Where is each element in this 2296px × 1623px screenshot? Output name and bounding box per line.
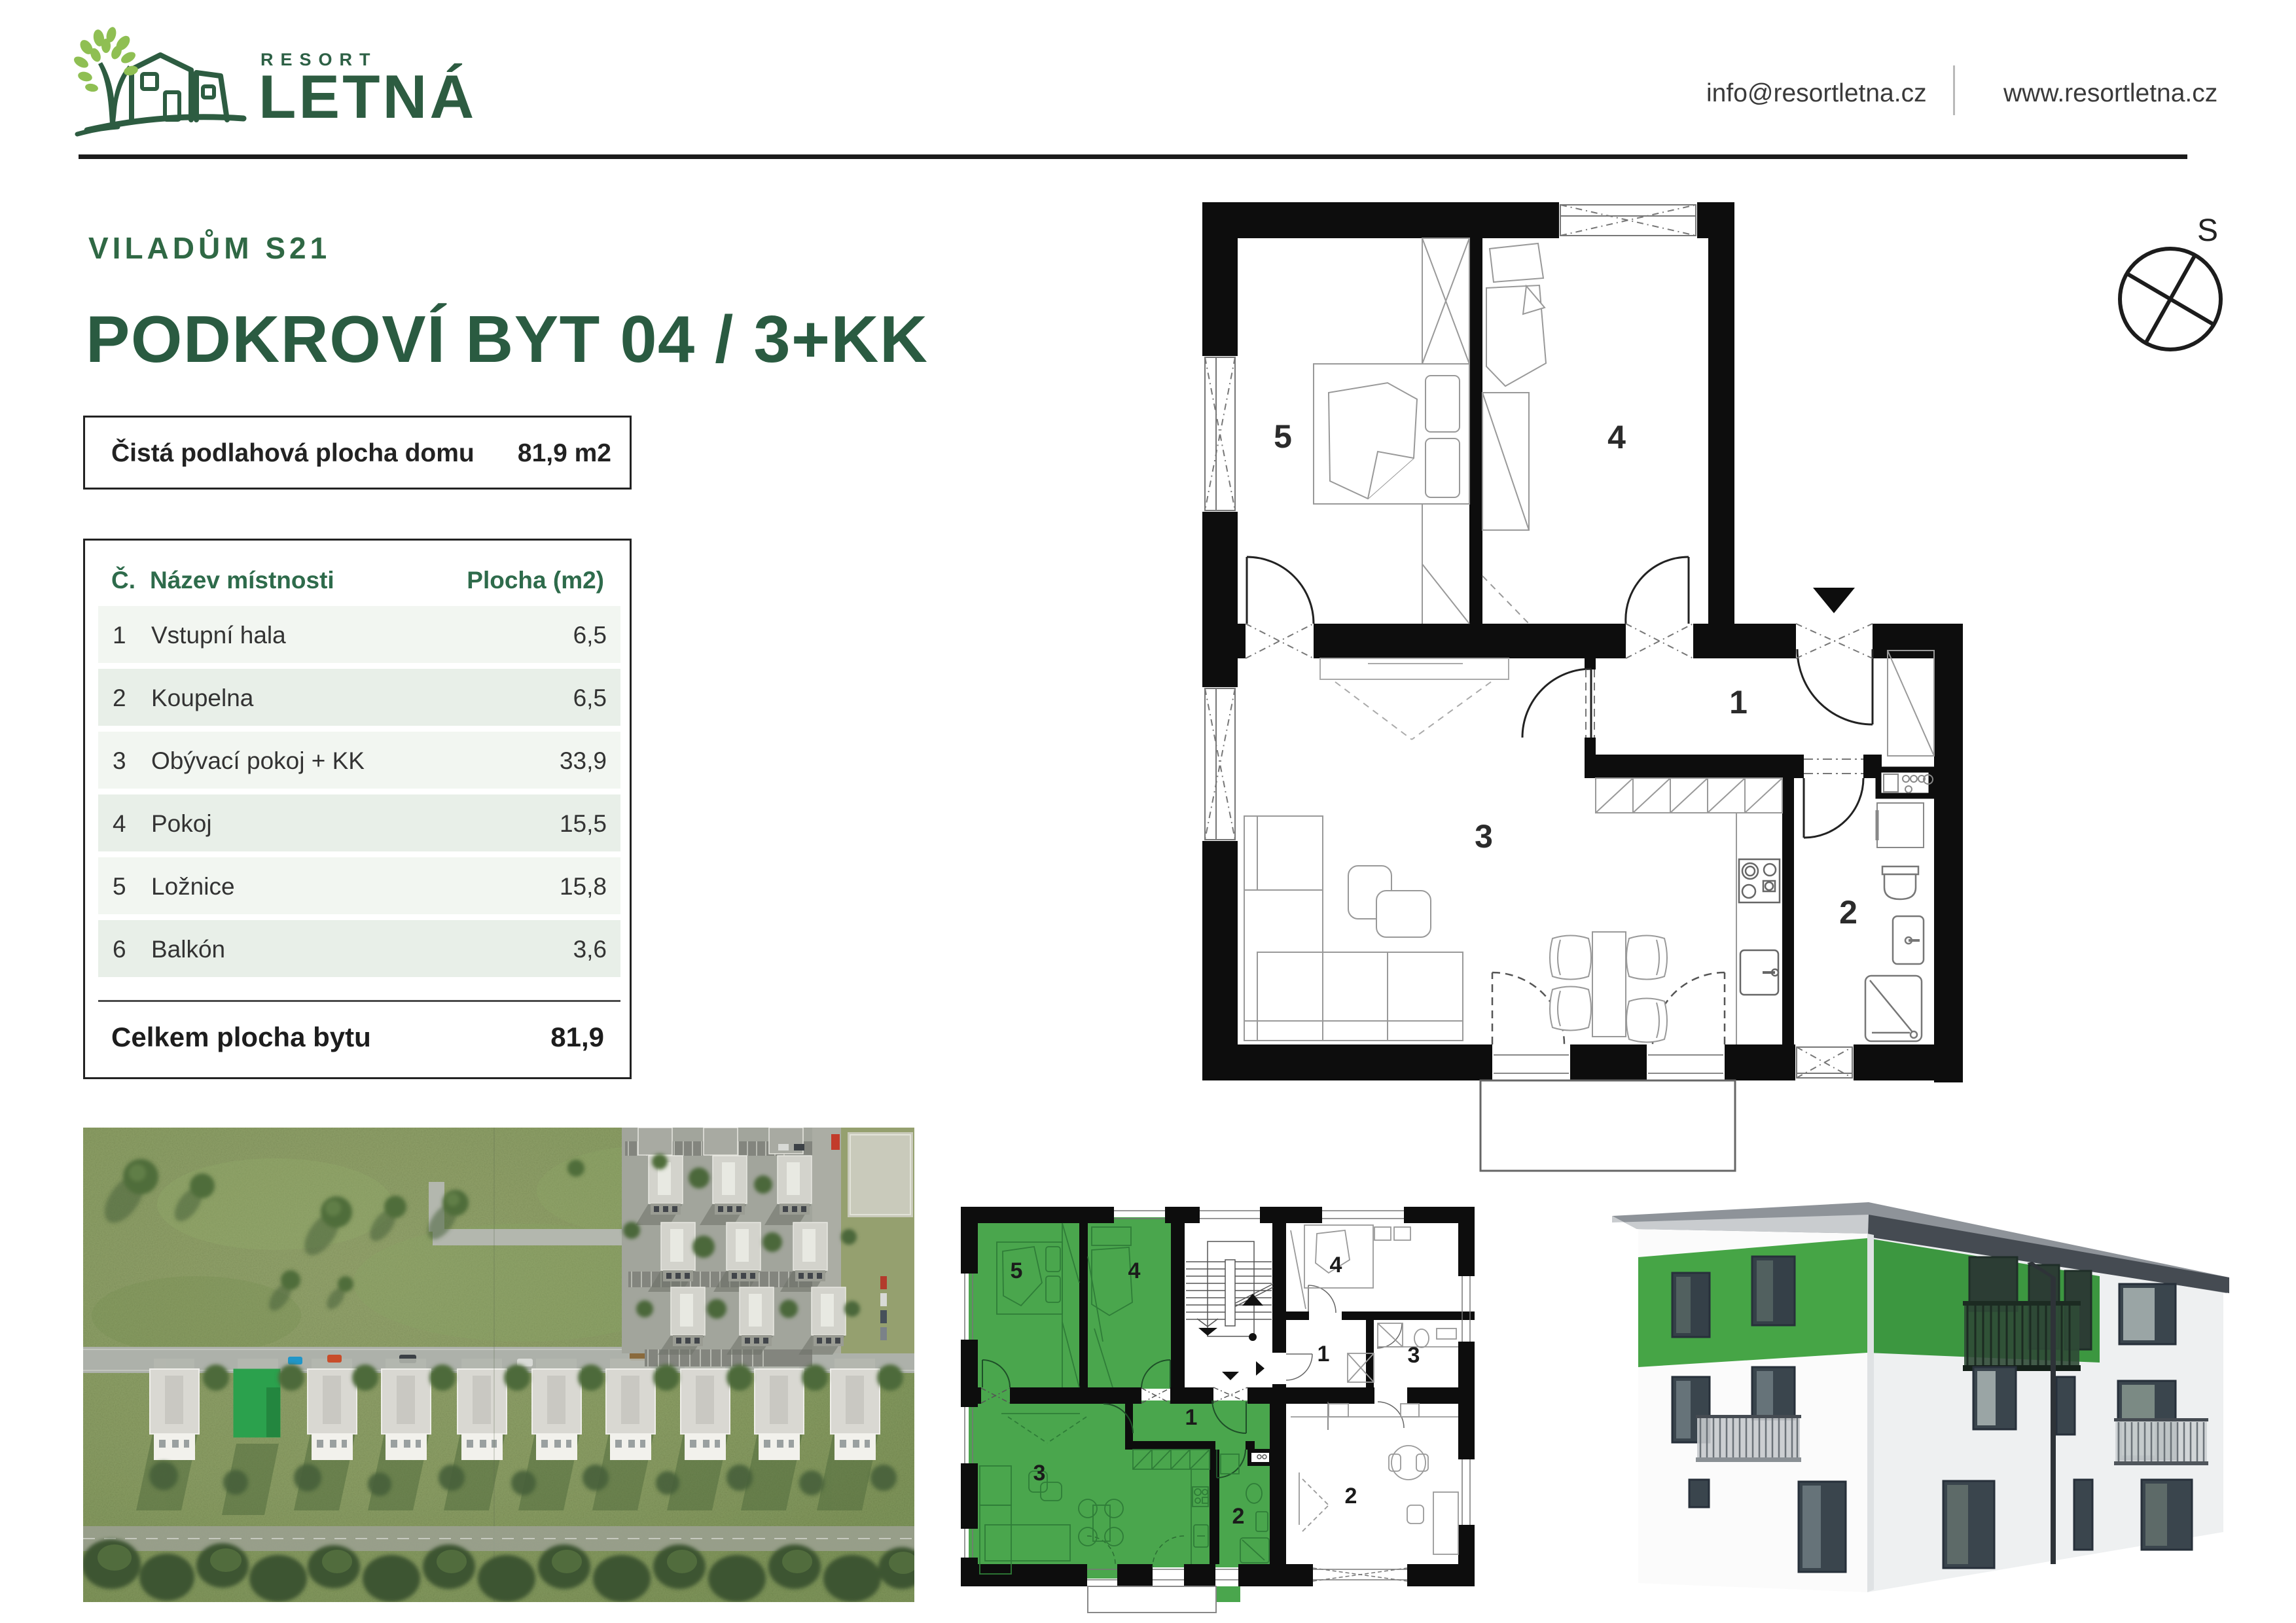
svg-text:S: S: [2197, 213, 2218, 248]
svg-text:1: 1: [1185, 1405, 1198, 1430]
svg-text:1: 1: [1318, 1342, 1330, 1366]
svg-text:1: 1: [1729, 684, 1748, 721]
svg-text:4: 4: [1128, 1258, 1141, 1283]
svg-text:2: 2: [1232, 1504, 1245, 1529]
svg-text:3: 3: [1475, 818, 1493, 855]
svg-text:4: 4: [1330, 1253, 1342, 1277]
svg-text:3: 3: [1408, 1343, 1420, 1368]
svg-text:5: 5: [1274, 418, 1292, 455]
svg-text:2: 2: [1345, 1484, 1357, 1508]
svg-text:5: 5: [1011, 1258, 1023, 1283]
svg-text:2: 2: [1839, 894, 1857, 931]
svg-text:3: 3: [1033, 1461, 1046, 1486]
svg-text:LETNÁ: LETNÁ: [259, 62, 476, 131]
svg-text:4: 4: [1607, 419, 1626, 455]
